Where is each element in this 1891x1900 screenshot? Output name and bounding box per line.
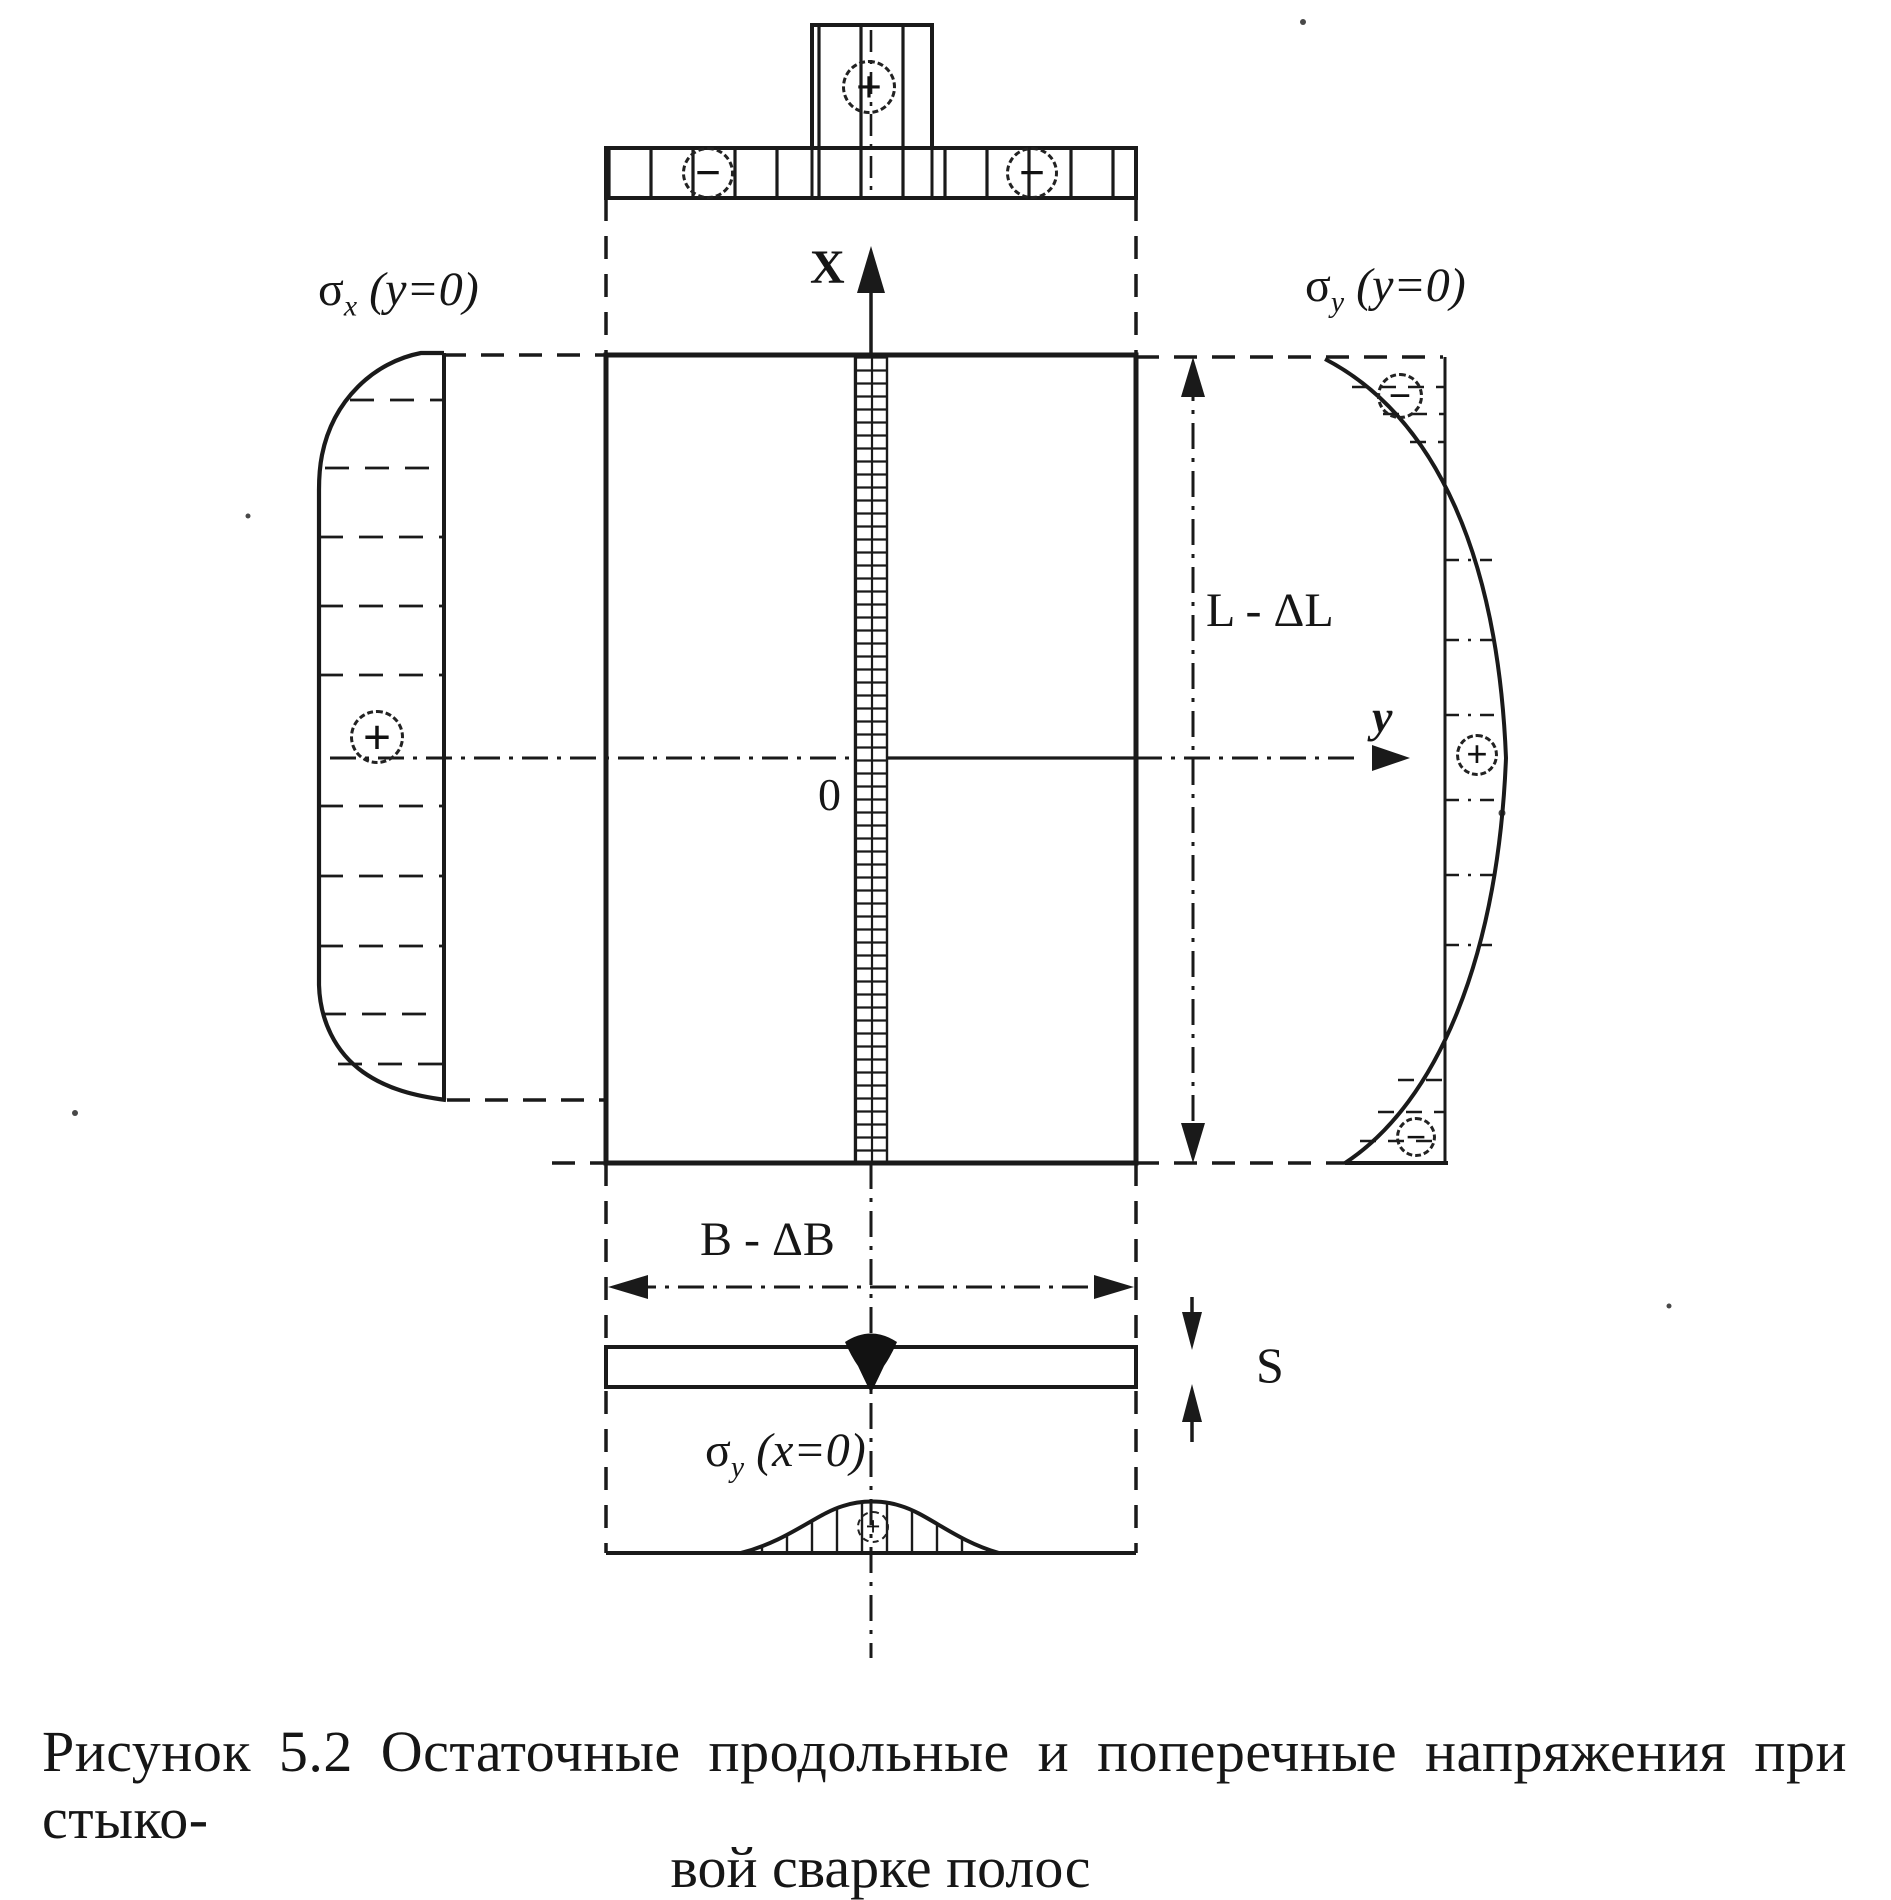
y-axis-label: y — [1372, 690, 1392, 743]
plus-sign: + — [866, 1514, 881, 1540]
minus-sign: − — [1389, 376, 1412, 416]
sigma-symbol: σ — [705, 1424, 731, 1477]
minus-sign: − — [695, 150, 721, 196]
plus-sign: + — [363, 712, 392, 762]
thickness-dimension-arrows — [1182, 1297, 1202, 1442]
minus-marker-band-right: − — [1006, 147, 1058, 199]
plus-sign: + — [1466, 736, 1488, 774]
welding-stress-diagram — [0, 0, 1891, 1900]
length-dimension-label: L - ΔL — [1206, 583, 1334, 638]
profile-condition: (x=0) — [756, 1424, 866, 1477]
weld-nugget — [845, 1334, 897, 1394]
minus-marker-right-top: − — [1377, 373, 1423, 419]
left-profile-label: σx (y=0) — [318, 262, 479, 324]
right-profile-label: σy (y=0) — [1305, 258, 1466, 320]
length-dimension-line — [1181, 357, 1205, 1163]
thickness-dimension-label: S — [1256, 1336, 1284, 1394]
sigma-subscript: y — [731, 1451, 744, 1484]
minus-marker-band-left: − — [682, 147, 734, 199]
plus-marker-top-block: + — [842, 60, 896, 114]
dashed-extension-lines — [443, 198, 1443, 1553]
origin-label: 0 — [818, 768, 841, 821]
figure-caption-line2: вой сварке полос — [0, 1834, 1761, 1900]
scanned-figure-page: σx (y=0) σy (y=0) σy (x=0) X y 0 L - ΔL … — [0, 0, 1891, 1900]
sigma-subscript: x — [344, 290, 357, 323]
y-axis-arrow — [1372, 745, 1410, 771]
bottom-profile-label: σy (x=0) — [705, 1423, 866, 1485]
plus-marker-bell-curve: + — [857, 1511, 889, 1543]
width-dimension-label: B - ΔB — [700, 1212, 835, 1267]
weld-seam — [855, 355, 887, 1163]
plus-marker-right-middle: + — [1456, 734, 1498, 776]
minus-sign: − — [1019, 150, 1045, 196]
x-axis-arrow — [857, 246, 885, 355]
strip-cross-section — [606, 1334, 1136, 1394]
sigma-symbol: σ — [318, 263, 344, 316]
sigma-symbol: σ — [1305, 259, 1331, 312]
plus-marker-left-profile: + — [350, 710, 404, 764]
x-axis-label: X — [810, 240, 845, 295]
minus-marker-right-bottom: − — [1396, 1117, 1436, 1157]
profile-condition: (y=0) — [369, 263, 479, 316]
figure-caption-line1: Рисунок 5.2 Остаточные продольные и попе… — [42, 1718, 1847, 1852]
sigma-subscript: y — [1331, 286, 1344, 319]
minus-sign: − — [1406, 1119, 1427, 1155]
plus-sign: + — [856, 64, 882, 110]
profile-condition: (y=0) — [1356, 259, 1466, 312]
